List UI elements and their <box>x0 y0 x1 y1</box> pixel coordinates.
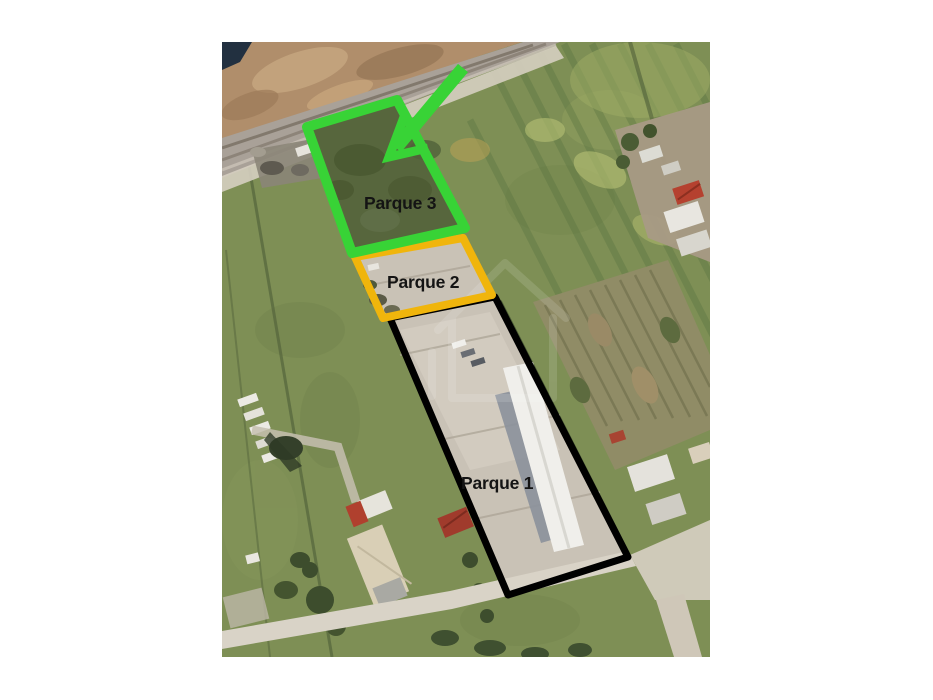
screenshot-canvas: Parque 3 Parque 2 Parque 1 <box>0 0 933 700</box>
parcel-label-parque-2: Parque 2 <box>387 272 460 292</box>
parcel-label-parque-1: Parque 1 <box>461 473 534 493</box>
aerial-photo-figure: Parque 3 Parque 2 Parque 1 <box>0 0 933 700</box>
parcel-label-parque-3: Parque 3 <box>364 193 437 213</box>
